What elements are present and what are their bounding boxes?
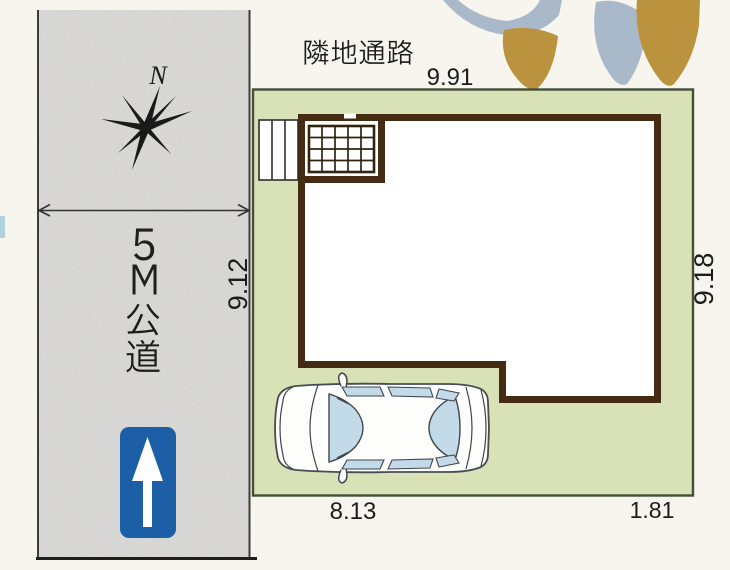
- svg-text:9.91: 9.91: [427, 64, 474, 91]
- svg-text:9.18: 9.18: [689, 253, 719, 306]
- svg-text:N: N: [148, 61, 168, 90]
- svg-text:1.81: 1.81: [630, 497, 675, 523]
- svg-text:8.13: 8.13: [330, 498, 377, 525]
- svg-text:9.12: 9.12: [223, 258, 253, 311]
